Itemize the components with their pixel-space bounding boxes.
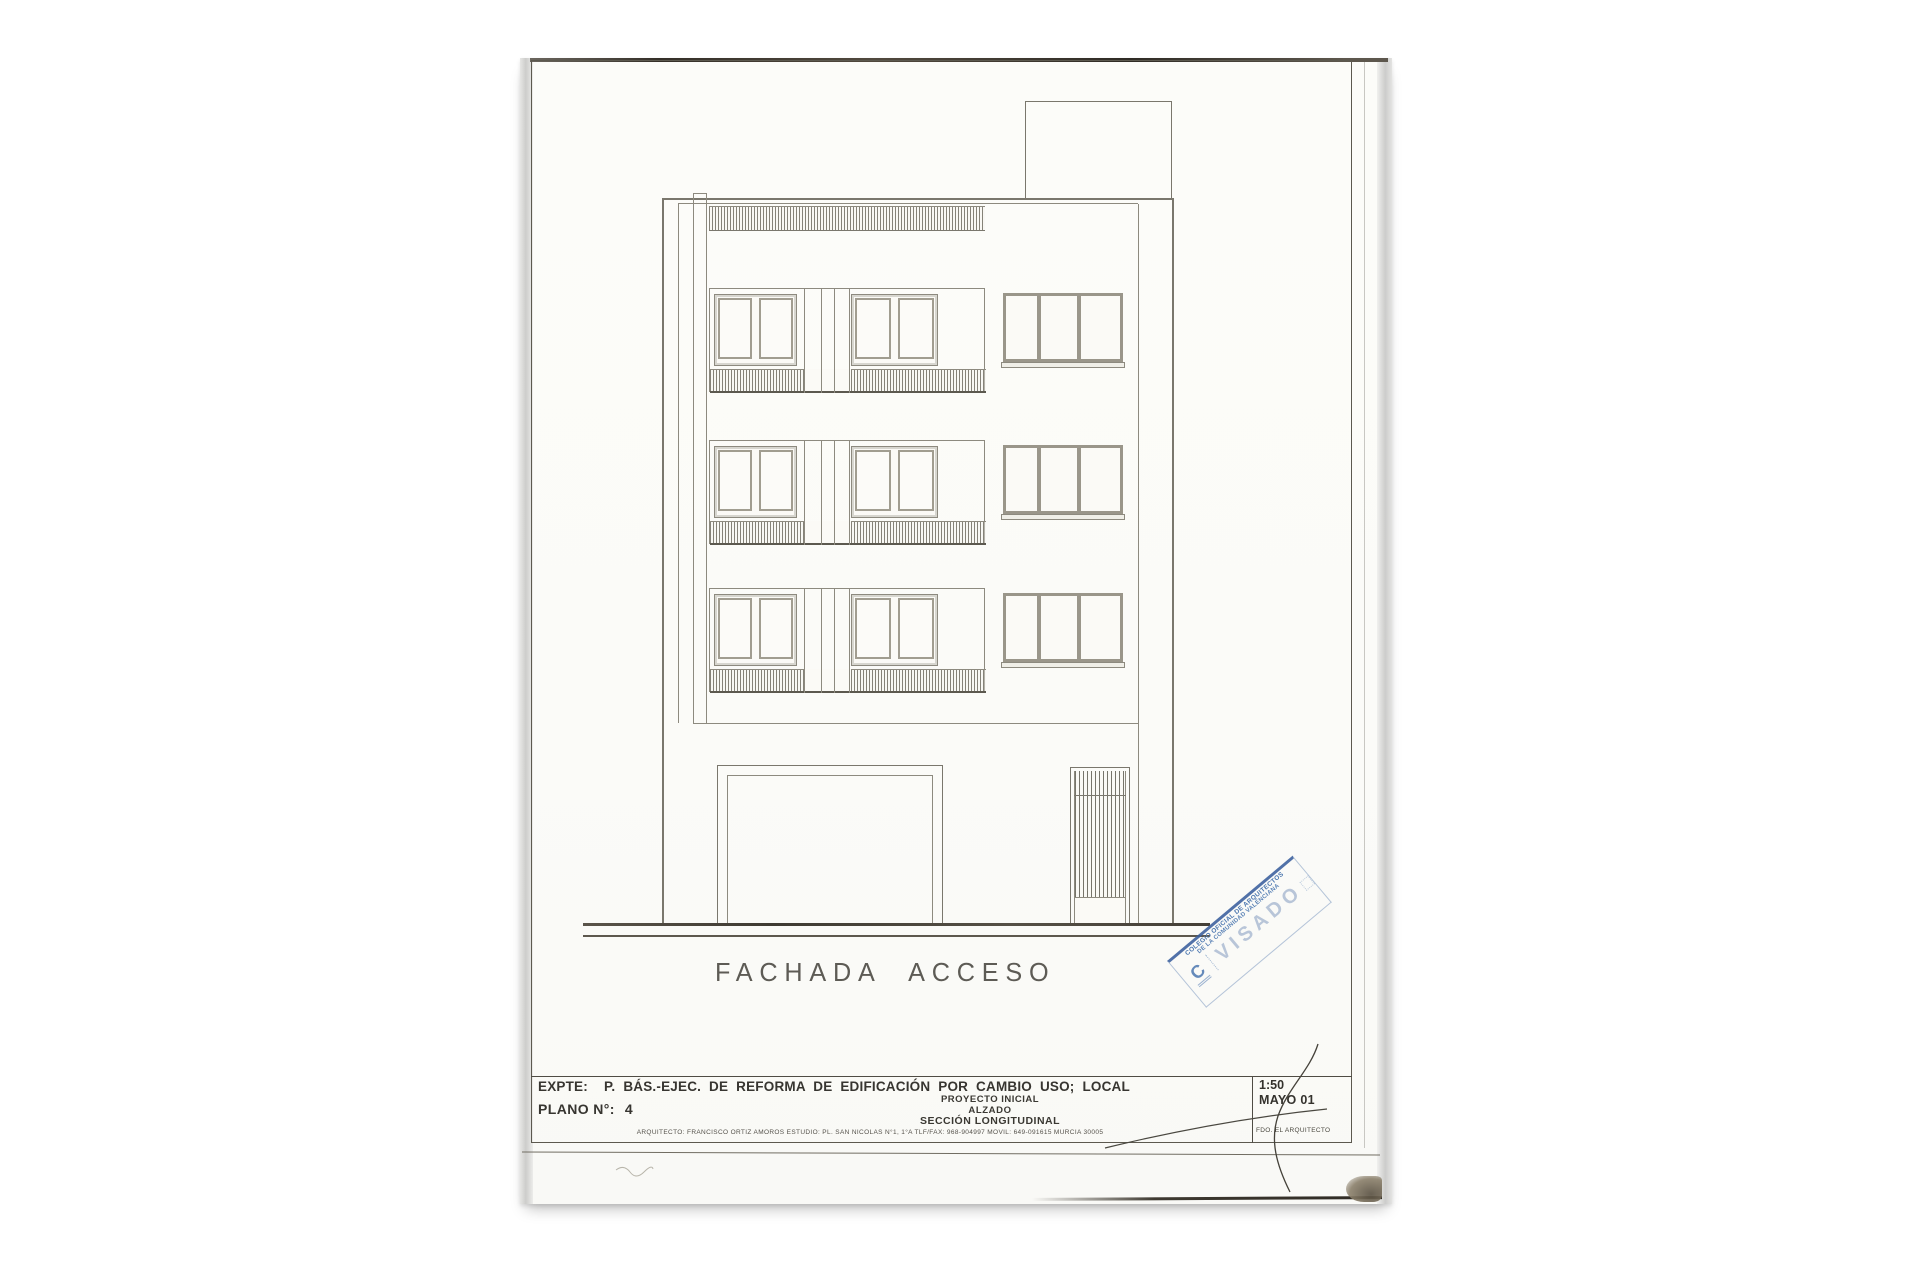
pier-line [834, 289, 835, 393]
window-mullion [1037, 596, 1041, 659]
scale-value: 1:50 [1259, 1078, 1284, 1092]
side-window [1003, 293, 1123, 362]
pier-base [804, 669, 851, 693]
ground-line-lower [583, 935, 1210, 937]
pier-line [821, 589, 822, 693]
window-leaf [718, 598, 752, 660]
balcony-window [714, 294, 797, 366]
balcony-railing-hatch [710, 369, 804, 393]
date-value: MAYO 01 [1259, 1093, 1315, 1107]
pier-line [834, 441, 835, 545]
window-leaf [759, 450, 793, 512]
stair-penthouse-outline [1025, 101, 1172, 198]
architect-info-line: ARQUITECTO: FRANCISCO ORTIZ AMOROS ESTUD… [580, 1129, 1160, 1136]
window-leaf [855, 298, 891, 360]
pier-line [849, 289, 850, 393]
window-mullion [1037, 296, 1041, 359]
facade-floor-row-2 [520, 440, 1392, 544]
balcony-railing-hatch [851, 521, 986, 545]
ground-line-upper [583, 923, 1210, 926]
pencil-mark [616, 1167, 653, 1176]
cornice-hatch-band [709, 206, 985, 231]
plano-number: 4 [625, 1101, 633, 1117]
stamp-logo-block: C [1185, 960, 1211, 987]
pier-line [821, 441, 822, 545]
parapet-top-line [662, 198, 1172, 200]
facade-floor-row-3 [520, 288, 1392, 392]
project-phase: PROYECTO INICIAL [770, 1094, 1210, 1105]
window-mullion [1037, 448, 1041, 511]
expte-value: P. BÁS.-EJEC. DE REFORMA DE EDIFICACIÓN … [604, 1079, 1130, 1094]
title-block-bottom-scan-line [522, 1152, 1380, 1156]
expte-label: EXPTE: [538, 1079, 588, 1094]
entrance-grate-transom-line [1074, 795, 1126, 796]
side-window [1003, 445, 1123, 514]
window-leaf [898, 450, 934, 512]
first-floor-slab-line [693, 723, 1138, 724]
balcony-group [709, 288, 985, 392]
facade-floor-row-1 [520, 588, 1392, 692]
pier-base [804, 369, 851, 393]
balcony-railing-hatch [710, 521, 804, 545]
balcony-railing-hatch [851, 369, 986, 393]
balcony-railing-hatch [710, 669, 804, 693]
balcony-group [709, 440, 985, 544]
balcony-railing-hatch [851, 669, 986, 693]
balcony-window [851, 446, 938, 518]
expte-line: EXPTE:P. BÁS.-EJEC. DE REFORMA DE EDIFIC… [538, 1079, 1130, 1094]
balcony-window [714, 594, 797, 666]
window-sill [1001, 662, 1125, 668]
window-leaf [718, 450, 752, 512]
side-window [1003, 593, 1123, 662]
window-leaf [759, 598, 793, 660]
title-block-divider [1252, 1076, 1253, 1143]
entrance-grate-base-panel [1074, 897, 1126, 924]
pier-line [849, 589, 850, 693]
pier-base [804, 521, 851, 545]
drawing-sheet: FACHADA ACCESO EXPTE:P. BÁS.-EJEC. DE RE… [520, 58, 1392, 1204]
title-block-top-line [531, 1076, 1352, 1077]
window-leaf [855, 598, 891, 660]
pier-line [834, 589, 835, 693]
page-bottom-scan-edge [1032, 1196, 1382, 1201]
window-mullion [1077, 448, 1081, 511]
pier-line [804, 589, 805, 693]
pier-line [849, 441, 850, 545]
window-leaf [718, 298, 752, 360]
signature-caption: FDO. EL ARQUITECTO [1256, 1127, 1330, 1134]
pier-line [821, 289, 822, 393]
garage-door-inner [727, 775, 933, 924]
window-leaf [759, 298, 793, 360]
torn-corner-mark [1346, 1176, 1382, 1202]
plano-line: PLANO N°:4 [538, 1101, 633, 1117]
window-mullion [1077, 596, 1081, 659]
window-leaf [855, 450, 891, 512]
window-sill [1001, 514, 1125, 520]
window-leaf [898, 598, 934, 660]
drawing-title: FACHADA ACCESO [715, 957, 1035, 988]
parapet-inner-line [678, 203, 1138, 204]
pier-line [804, 289, 805, 393]
window-sill [1001, 362, 1125, 368]
pier-line [804, 441, 805, 545]
balcony-group [709, 588, 985, 692]
balcony-window [851, 594, 938, 666]
balcony-window [714, 446, 797, 518]
entrance-grate-bars [1074, 771, 1126, 897]
balcony-window [851, 294, 938, 366]
drawing-subtype: SECCIÓN LONGITUDINAL [770, 1115, 1210, 1127]
window-leaf [898, 298, 934, 360]
window-mullion [1077, 296, 1081, 359]
plano-label: PLANO N°: [538, 1101, 615, 1117]
